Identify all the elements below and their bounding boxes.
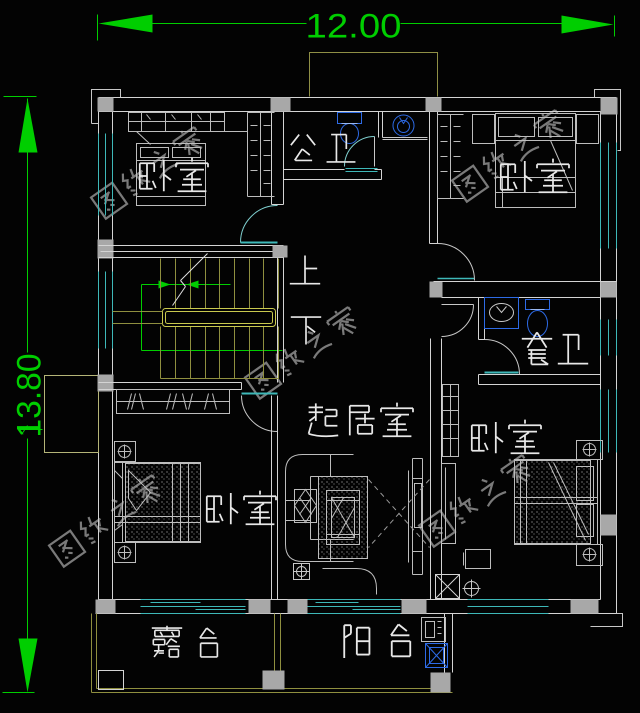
- svg-text:13.80: 13.80: [11, 354, 49, 438]
- svg-text:12.00: 12.00: [306, 8, 402, 46]
